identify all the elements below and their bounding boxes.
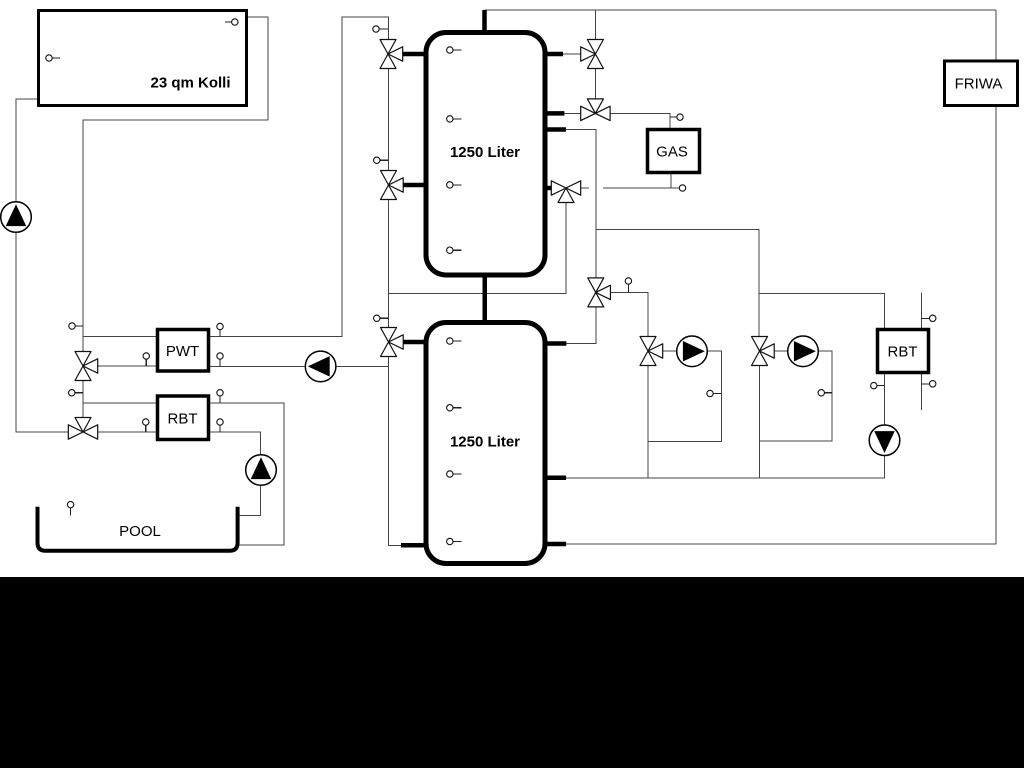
svg-text:23 qm Kolli: 23 qm Kolli bbox=[150, 75, 230, 92]
svg-text:1250 Liter: 1250 Liter bbox=[450, 144, 520, 161]
svg-text:RBT: RBT bbox=[168, 411, 198, 428]
svg-text:POOL: POOL bbox=[119, 523, 161, 540]
svg-text:GAS: GAS bbox=[656, 144, 688, 161]
svg-text:FRIWA: FRIWA bbox=[955, 76, 1003, 93]
svg-text:RBT: RBT bbox=[888, 344, 918, 361]
svg-text:1250 Liter: 1250 Liter bbox=[450, 434, 520, 451]
svg-text:PWT: PWT bbox=[166, 343, 199, 360]
